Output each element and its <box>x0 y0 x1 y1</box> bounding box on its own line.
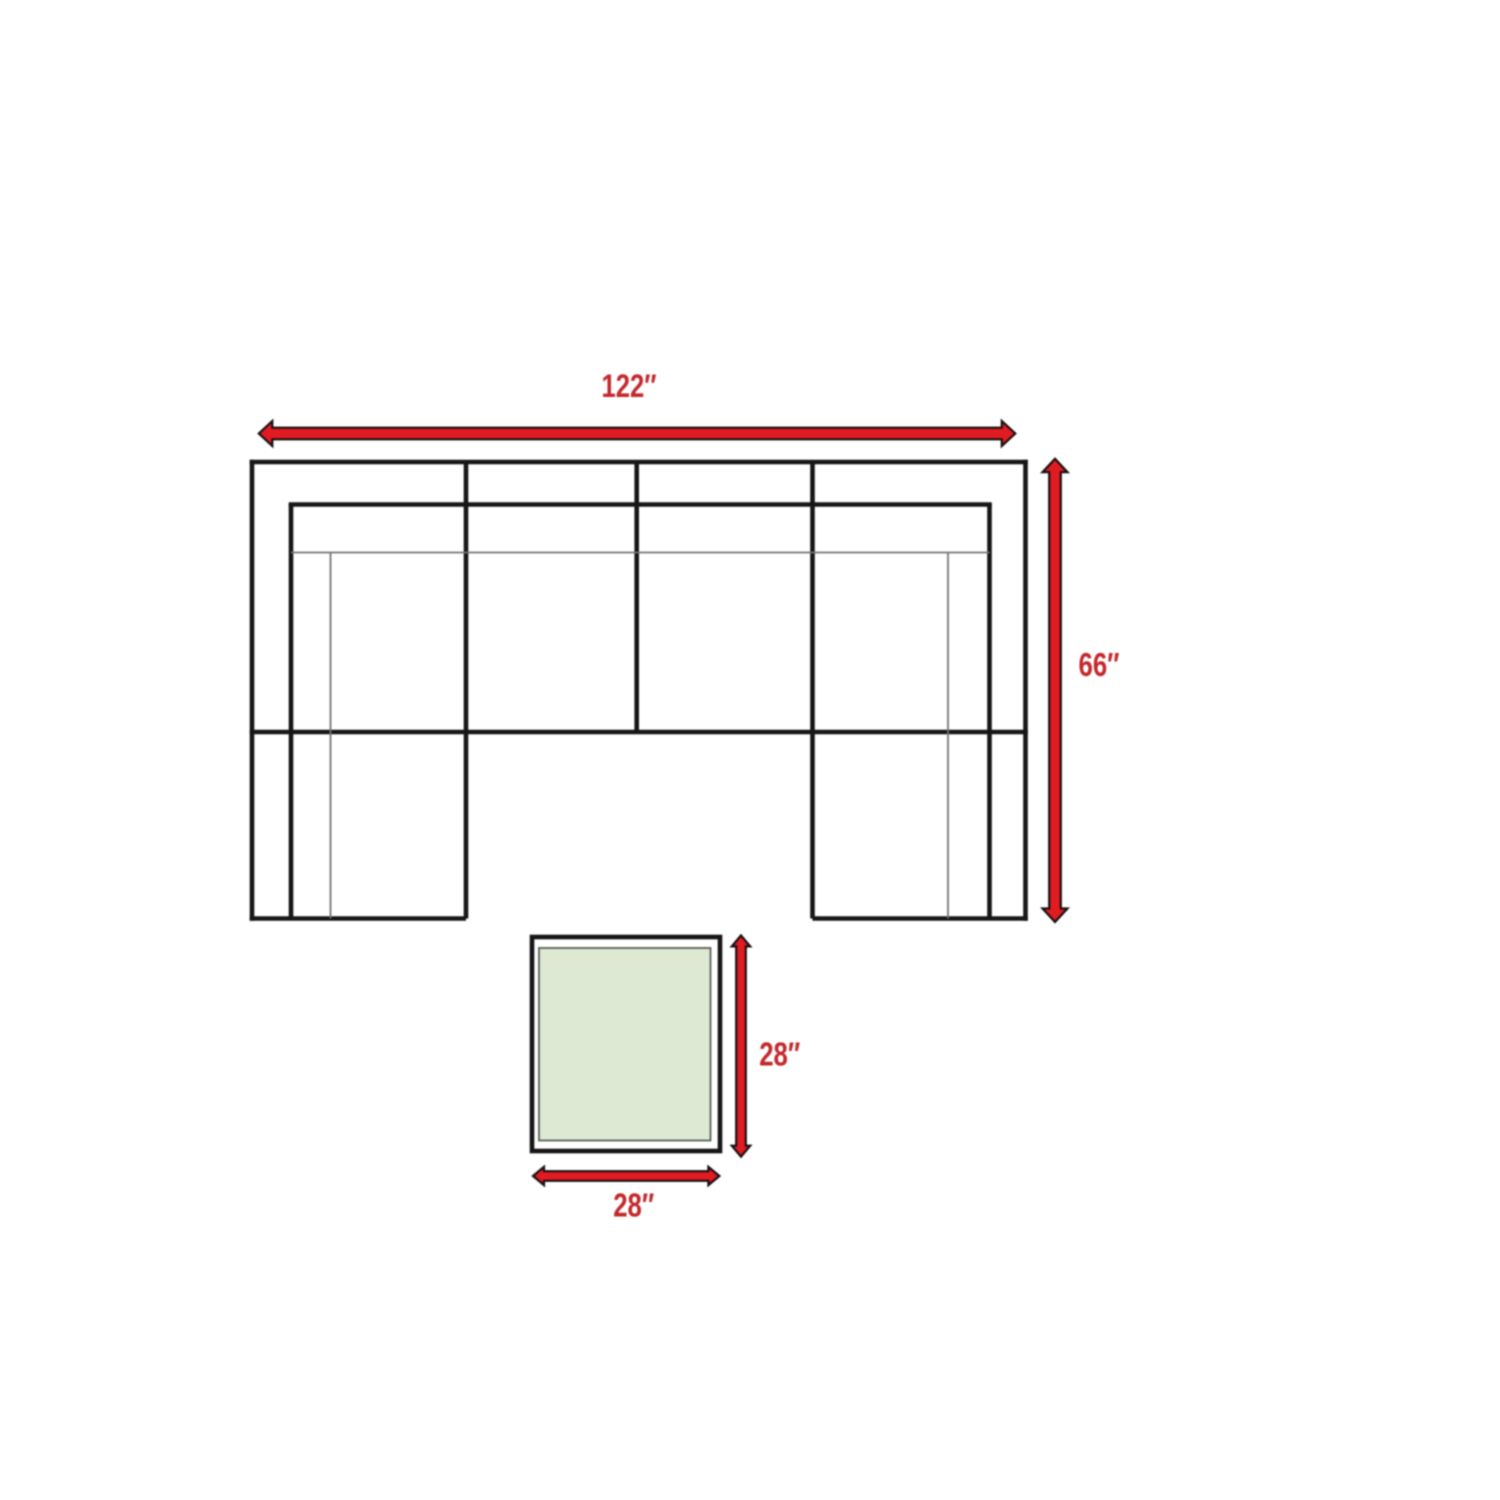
svg-text:28″: 28″ <box>613 1186 654 1223</box>
svg-text:28″: 28″ <box>759 1035 800 1072</box>
svg-text:66″: 66″ <box>1079 646 1120 683</box>
svg-text:122″: 122″ <box>602 368 657 404</box>
